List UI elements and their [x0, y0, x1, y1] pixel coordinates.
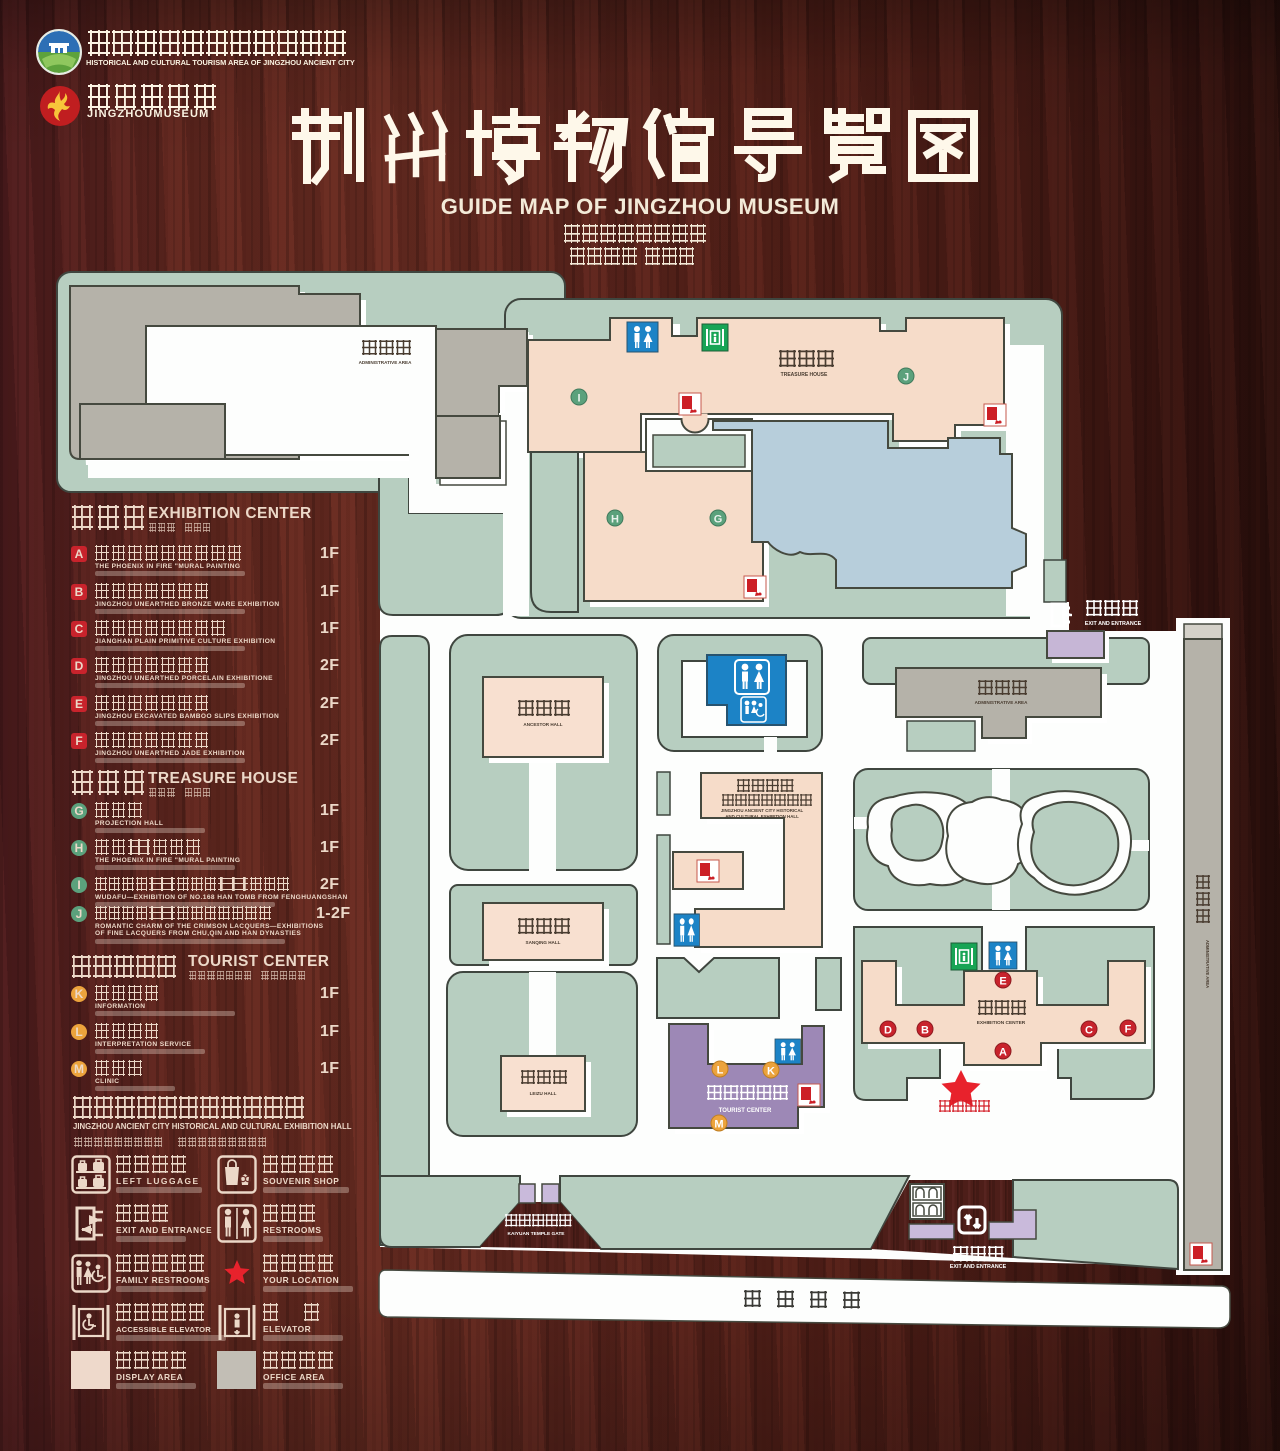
- svg-text:B: B: [921, 1025, 929, 1037]
- svg-text:AND CULTURAL EXHIBITION HALL: AND CULTURAL EXHIBITION HALL: [725, 814, 799, 819]
- svg-text:G: G: [714, 514, 723, 526]
- svg-text:M: M: [714, 1119, 723, 1131]
- svg-text:EXIT AND ENTRANCE: EXIT AND ENTRANCE: [950, 1264, 1007, 1270]
- svg-text:ANCESTOR HALL: ANCESTOR HALL: [523, 722, 562, 727]
- svg-text:TREASURE HOUSE: TREASURE HOUSE: [781, 372, 828, 378]
- svg-text:ADMINISTRATIVE AREA: ADMINISTRATIVE AREA: [1205, 940, 1210, 988]
- svg-text:H: H: [611, 514, 619, 526]
- svg-text:EXHIBITION CENTER: EXHIBITION CENTER: [977, 1020, 1026, 1026]
- svg-text:SANQING HALL: SANQING HALL: [526, 940, 561, 945]
- svg-text:D: D: [884, 1025, 892, 1037]
- svg-text:F: F: [1125, 1024, 1132, 1036]
- svg-text:K: K: [767, 1066, 775, 1078]
- svg-text:I: I: [577, 393, 580, 405]
- svg-text:A: A: [999, 1047, 1007, 1059]
- svg-text:EXIT AND ENTRANCE: EXIT AND ENTRANCE: [1085, 621, 1142, 627]
- svg-text:ADMINISTRATIVE AREA: ADMINISTRATIVE AREA: [975, 700, 1029, 705]
- svg-text:TOURIST CENTER: TOURIST CENTER: [719, 1108, 772, 1114]
- svg-text:J: J: [903, 372, 909, 384]
- svg-text:L: L: [717, 1065, 724, 1077]
- svg-text:JINGZHOU ANCIENT CITY HISTORIC: JINGZHOU ANCIENT CITY HISTORICAL: [721, 808, 804, 813]
- svg-text:KAIYUAN TEMPLE GATE: KAIYUAN TEMPLE GATE: [508, 1231, 566, 1237]
- svg-text:C: C: [1085, 1025, 1093, 1037]
- svg-text:E: E: [999, 976, 1006, 988]
- svg-text:LEIZU HALL: LEIZU HALL: [530, 1091, 557, 1096]
